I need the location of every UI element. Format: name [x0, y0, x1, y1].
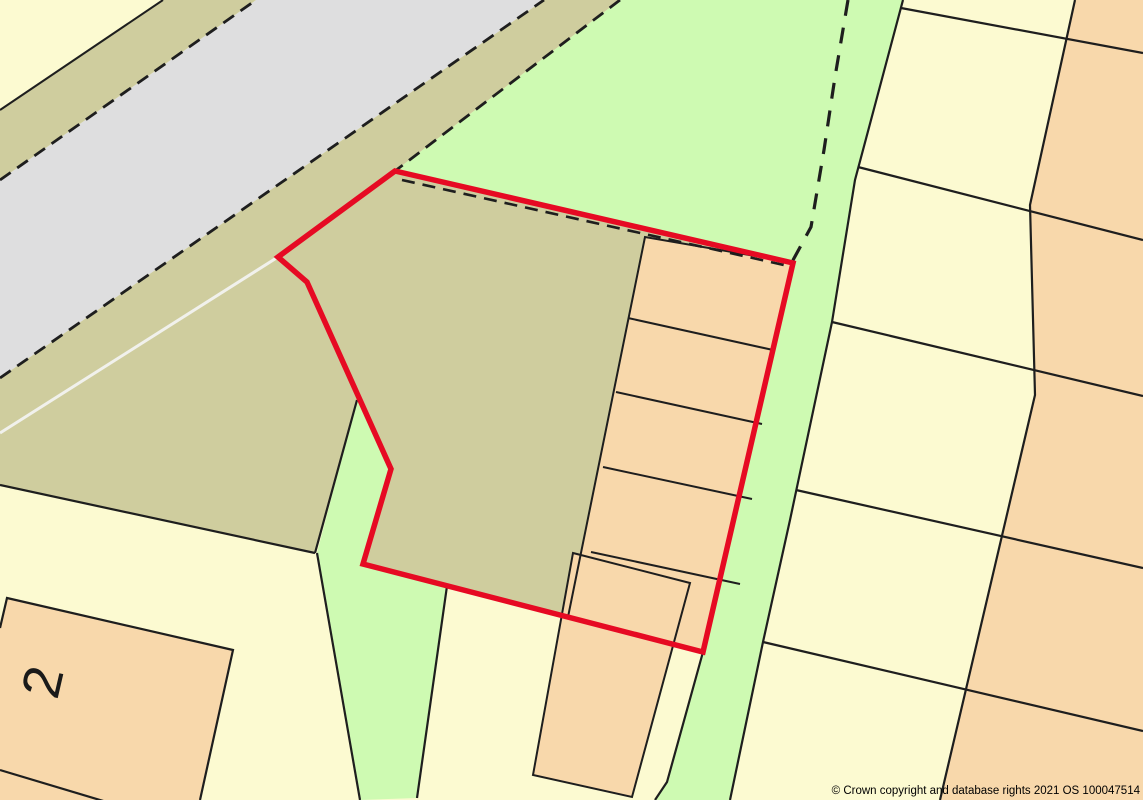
- orange-strip-east: [940, 0, 1143, 800]
- copyright-notice: © Crown copyright and database rights 20…: [832, 785, 1140, 797]
- map: [0, 0, 1143, 800]
- map-extract: 2 © Crown copyright and database rights …: [0, 0, 1143, 800]
